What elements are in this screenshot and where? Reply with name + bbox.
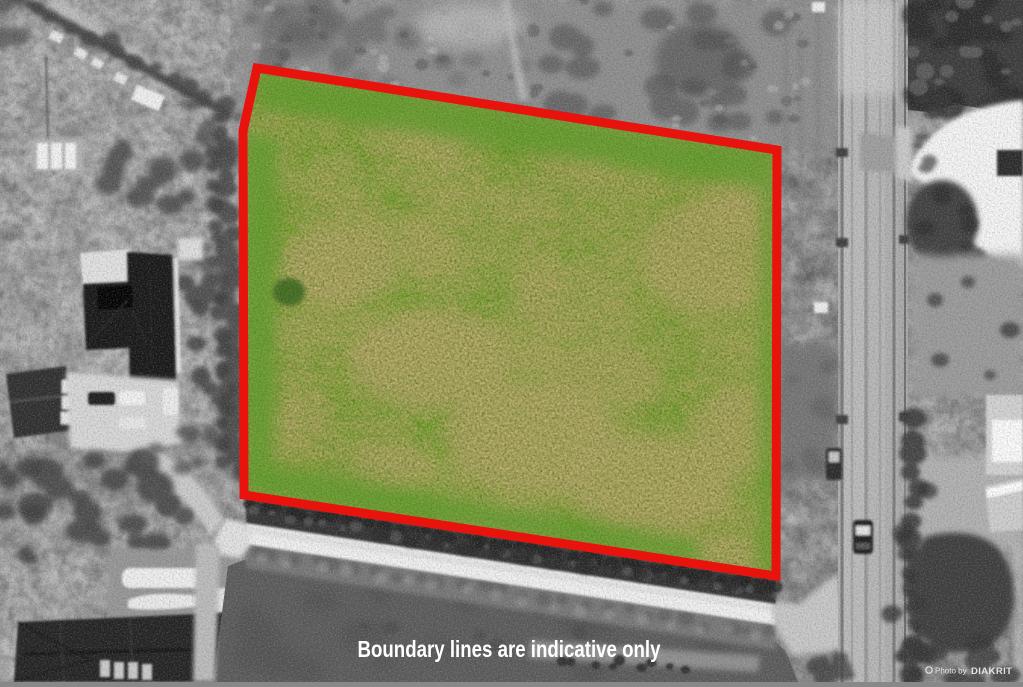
svg-text:Boundary lines are indicative: Boundary lines are indicative only xyxy=(358,636,661,662)
svg-text:Photo by: Photo by xyxy=(935,667,967,676)
svg-text:DIAKRIT: DIAKRIT xyxy=(971,666,1012,677)
